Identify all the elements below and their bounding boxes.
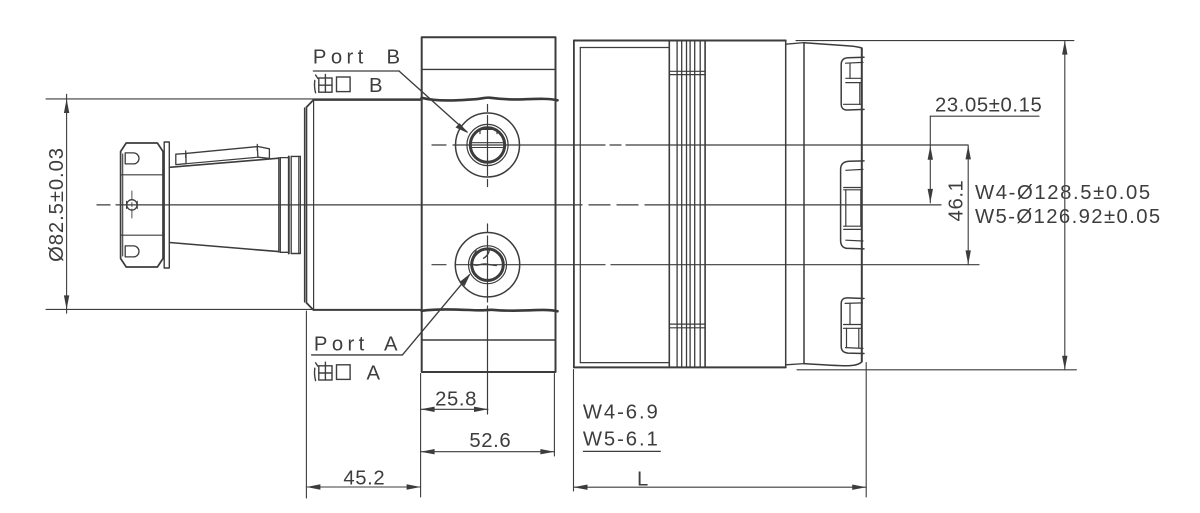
svg-text:23.05±0.15: 23.05±0.15 — [935, 94, 1042, 116]
svg-text:45.2: 45.2 — [343, 467, 385, 489]
svg-text:52.6: 52.6 — [469, 430, 511, 452]
svg-text:A: A — [367, 363, 381, 385]
svg-text:PortB: PortB — [313, 46, 400, 68]
svg-text:25.8: 25.8 — [435, 389, 477, 411]
svg-text:L: L — [637, 469, 649, 491]
svg-text:46.1: 46.1 — [946, 180, 968, 222]
svg-text:B: B — [369, 75, 383, 97]
svg-text:W4-Ø128.5±0.05: W4-Ø128.5±0.05 — [975, 182, 1152, 204]
svg-text:W5-6.1: W5-6.1 — [583, 429, 660, 451]
svg-text:PortA: PortA — [314, 333, 398, 355]
svg-text:W5-Ø126.92±0.05: W5-Ø126.92±0.05 — [975, 206, 1162, 228]
svg-text:Ø82.5±0.03: Ø82.5±0.03 — [46, 147, 68, 262]
svg-text:W4-6.9: W4-6.9 — [583, 401, 660, 423]
